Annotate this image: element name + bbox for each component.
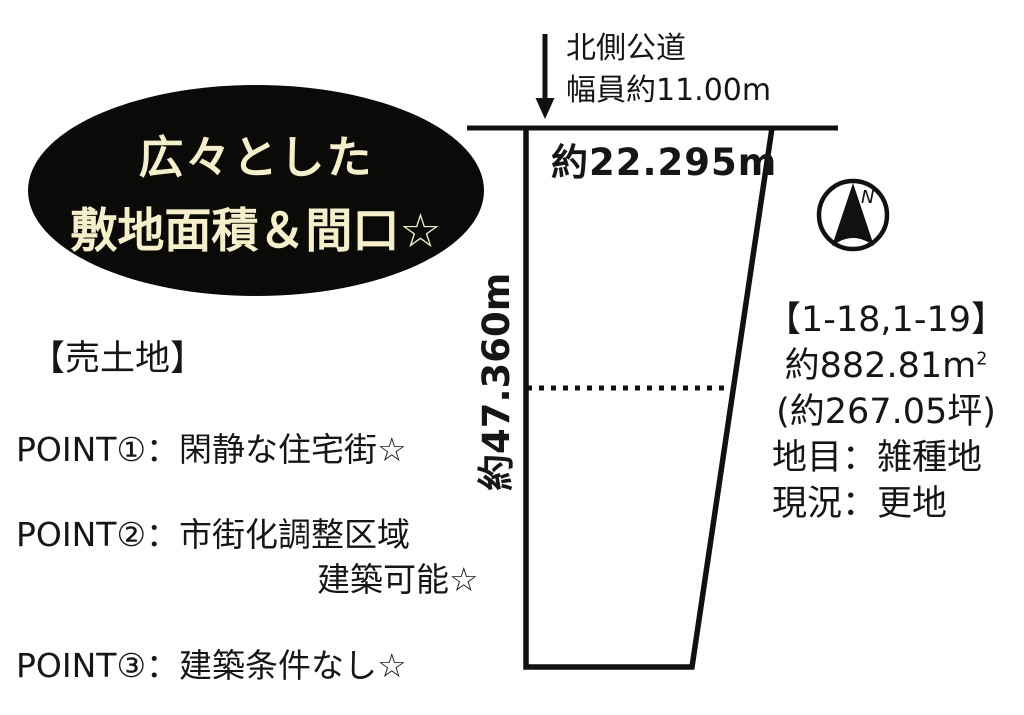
- area-sqm-exponent: 2: [976, 349, 987, 369]
- point-1: POINT①：閑静な住宅街☆: [16, 423, 407, 471]
- plot-info: 【1-18,1-19】 約882.81m2 (約267.05坪) 地目：雑種地 …: [748, 297, 1024, 527]
- area-sqm-unit: m: [942, 346, 976, 386]
- land-category: 地目：雑種地: [748, 435, 1024, 481]
- land-sale-flyer: N 広々とした 敷地面積＆間口☆ 【売土地】 POINT①：閑静な住宅街☆ PO…: [0, 0, 1024, 715]
- sale-type-label: 【売土地】: [30, 330, 205, 381]
- compass-icon: N: [819, 181, 887, 249]
- frontage-dimension: 約22.295m: [551, 132, 777, 186]
- road-name: 北側公道: [566, 28, 771, 70]
- headline-line2: 敷地面積＆間口☆: [70, 192, 441, 261]
- compass-north-label: N: [861, 187, 874, 208]
- point-3: POINT③：建築条件なし☆: [16, 639, 407, 687]
- headline-badge: 広々とした 敷地面積＆間口☆: [28, 85, 484, 296]
- current-status: 現況：更地: [748, 481, 1024, 527]
- lot-numbers: 【1-18,1-19】: [748, 297, 1024, 343]
- road-width: 幅員約11.00m: [566, 70, 771, 112]
- area-tsubo: (約267.05坪): [748, 389, 1024, 435]
- road-label: 北側公道 幅員約11.00m: [566, 28, 771, 112]
- depth-dimension: 約47.360m: [477, 301, 517, 491]
- headline-line1: 広々とした: [138, 121, 373, 186]
- plot-outline: [526, 128, 772, 667]
- point-2-line1: POINT②：市街化調整区域: [16, 508, 410, 556]
- point-2-line2: 建築可能☆: [317, 553, 479, 601]
- area-sqm: 約882.81m2: [748, 343, 1024, 389]
- road-arrow-icon: [536, 34, 555, 119]
- area-sqm-value: 約882.81: [785, 346, 942, 386]
